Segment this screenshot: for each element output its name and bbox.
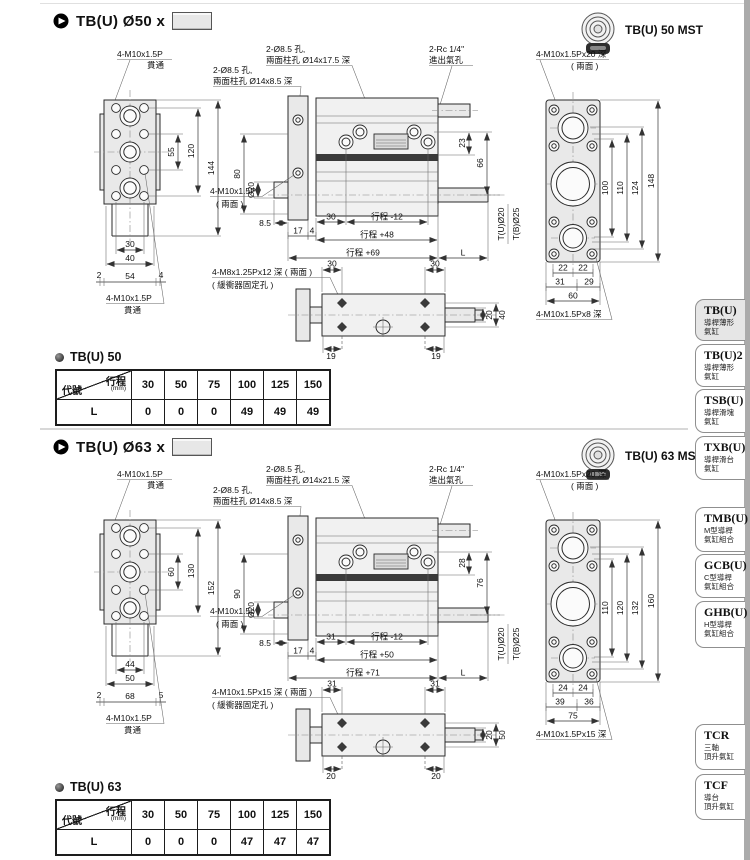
callout: 4-M8x1.25Px12 深 ( 兩面 ) (212, 267, 312, 277)
section-divider (40, 428, 688, 430)
side-section-view: 2-Ø8.5 孔, 兩面柱孔 Ø14x21.5 深 2-Rc 1/4" 進出氣孔… (210, 464, 521, 681)
sidebar-tab-tbu[interactable]: TB(U) 導桿薄形氣缸 (695, 299, 745, 341)
col-header: 150 (296, 371, 329, 399)
dim: 76 (475, 578, 485, 588)
callout: 4-M10x1.5Px15 深 (536, 729, 607, 739)
cell: 0 (164, 829, 197, 854)
callout: 4-M10x1.5P (117, 49, 163, 59)
cell: 49 (263, 399, 296, 424)
dim: 30 (327, 259, 337, 269)
cushion-bottom-view: 4-M8x1.25Px12 深 ( 兩面 ) ( 緩衝器固定孔 ) 30 30 … (212, 259, 507, 362)
callout: 貫通 (147, 480, 165, 490)
dim: 30 (125, 239, 135, 249)
dim: 120 (615, 601, 625, 615)
table-bullet-icon (55, 353, 64, 362)
dim: 20 (484, 730, 494, 740)
dim: 124 (630, 181, 640, 195)
dim: 行程 +71 (346, 668, 380, 678)
dim: 148 (646, 174, 656, 188)
dim: 100 (600, 181, 610, 195)
sidebar-tab-tcr[interactable]: TCR 三軸頂升氣缸 (695, 724, 745, 770)
dim: 80 (232, 169, 242, 179)
col-header: 100 (230, 371, 263, 399)
cell: 0 (197, 829, 230, 854)
callout: 貫通 (124, 725, 142, 735)
callout: 4-M10x1.5P (106, 293, 152, 303)
callout: 進出氣孔 (429, 475, 464, 485)
section-header-50: TB(U) Ø50 x (53, 12, 212, 30)
col-header: 75 (197, 801, 230, 829)
dim: 30 (430, 259, 440, 269)
callout: 貫通 (124, 305, 142, 315)
dim: 29 (584, 277, 594, 287)
dim: 160 (646, 594, 656, 608)
sidebar-tab-tbu2[interactable]: TB(U)2 導桿薄形氣缸 (695, 344, 745, 387)
end-view: 4-M10x1.5Px20 深 ( 兩面 ) 100 110 124 14 (536, 49, 660, 320)
stroke-value-box (172, 438, 212, 456)
stroke-table-63: TB(U) 63 行程 (mm) 代號 30 50 75 100 125 150… (55, 780, 331, 856)
dim: 行程 -12 (371, 212, 403, 222)
callout: ( 兩面 ) (571, 481, 599, 491)
front-view: 4-M10x1.5P 貫通 60 130 152 44 50 (94, 469, 221, 735)
dim: 4 (310, 646, 315, 656)
table-title: TB(U) 63 (70, 780, 121, 794)
dim: 40 (497, 310, 507, 320)
cell: 0 (131, 829, 164, 854)
cell: 47 (263, 829, 296, 854)
callout: ( 兩面 ) (216, 619, 244, 629)
sidebar-tab-ghbu[interactable]: GHB(U) H型導桿氣缸組合 (695, 601, 745, 648)
dim: 90 (232, 589, 242, 599)
section-bullet-icon (53, 439, 69, 455)
cell: 0 (131, 399, 164, 424)
dim: 行程 -12 (371, 632, 403, 642)
callout: 4-M10x1.5p (210, 606, 255, 616)
callout: 4-M10x1.5Px15 深 ( 兩面 ) (212, 687, 312, 697)
dim: 68 (125, 691, 135, 701)
callout: 兩面柱孔 Ø14x17.5 深 (266, 55, 351, 65)
callout: 2-Ø8.5 孔, (266, 44, 305, 54)
dim: 50 (125, 673, 135, 683)
side-section-view: 2-Ø8.5 孔, 兩面柱孔 Ø14x17.5 深 2-Rc 1/4" 進出氣孔… (210, 44, 521, 261)
dim: 24 (578, 683, 588, 693)
dim: 130 (186, 564, 196, 578)
dim: 152 (206, 581, 216, 595)
dim: 110 (600, 601, 610, 615)
dim: 31 (555, 277, 565, 287)
callout: ( 兩面 ) (571, 61, 599, 71)
callout: ( 緩衝器固定孔 ) (212, 700, 274, 710)
callout: 進出氣孔 (429, 55, 464, 65)
dim: 36 (584, 697, 594, 707)
col-header: 30 (131, 801, 164, 829)
dim: 39 (555, 697, 565, 707)
row-label: L (57, 399, 131, 424)
d im: 60 (568, 291, 578, 301)
dim: 44 (125, 659, 135, 669)
sidebar-tab-tcf[interactable]: TCF 導台頂升氣缸 (695, 774, 745, 820)
col-header: 125 (263, 801, 296, 829)
dim: 55 (166, 147, 176, 157)
callout: 2-Rc 1/4" (429, 464, 464, 474)
sidebar-tab-tmbu[interactable]: TMB(U) M型導桿氣缸組合 (695, 507, 745, 552)
callout: 2-Rc 1/4" (429, 44, 464, 54)
cell: 47 (296, 829, 329, 854)
cell: 0 (164, 399, 197, 424)
dim: 行程 +48 (360, 230, 394, 240)
callout: ( 兩面 ) (216, 199, 244, 209)
rod-label: T(U)Ø20 (496, 627, 506, 660)
col-header: 50 (164, 801, 197, 829)
dim: 30 (326, 212, 336, 222)
section-header-63: TB(U) Ø63 x (53, 438, 212, 456)
dim: 40 (125, 253, 135, 263)
dim: 17 (293, 226, 303, 236)
dim: 22 (558, 263, 568, 273)
col-header: 150 (296, 801, 329, 829)
dim: 132 (630, 601, 640, 615)
dim: 50 (497, 730, 507, 740)
dim: 66 (475, 158, 485, 168)
cushion-bottom-view: 4-M10x1.5Px15 深 ( 兩面 ) ( 緩衝器固定孔 ) 31 31 … (212, 679, 507, 782)
table-title: TB(U) 50 (70, 350, 121, 364)
dim: 144 (206, 161, 216, 175)
dim: 20 (484, 310, 494, 320)
col-header: 30 (131, 371, 164, 399)
callout: ( 緩衝器固定孔 ) (212, 280, 274, 290)
col-header: 50 (164, 371, 197, 399)
callout: 兩面柱孔 Ø14x8.5 深 (213, 496, 293, 506)
dim: L (461, 668, 466, 678)
dim: 17 (293, 646, 303, 656)
row-label: L (57, 829, 131, 854)
dim: 54 (125, 271, 135, 281)
dim: 22 (578, 263, 588, 273)
catalog-page: TB(U) Ø50 x TB(U) 50 MST 4-M10x1.5P 貫通 (0, 0, 750, 860)
callout: 4-M10x1.5Px20 深 (536, 49, 607, 59)
sidebar-tab-tsbu[interactable]: TSB(U) 導桿滑塊氣缸 (695, 389, 745, 433)
stroke-table-50: TB(U) 50 行程 (mm) 代號 30 50 75 100 125 150… (55, 350, 331, 426)
cell: 49 (296, 399, 329, 424)
callout: 2-Ø8.5 孔, (266, 464, 305, 474)
callout: 4-M10x1.5P (117, 469, 163, 479)
engineering-drawing-tbu50: 4-M10x1.5P 貫通 55 120 144 30 40 (0, 42, 690, 362)
mst-label: TB(U) 50 MST (625, 23, 703, 37)
callout: 2-Ø8.5 孔, (213, 485, 252, 495)
dim: 8.5 (259, 218, 271, 228)
callout: 4-M10x1.5Px20 深 (536, 469, 607, 479)
sidebar-tab-gcbu[interactable]: GCB(U) C型導桿氣缸組合 (695, 554, 745, 598)
section-title: TB(U) Ø63 x (76, 439, 165, 456)
front-view: 4-M10x1.5P 貫通 55 120 144 30 40 (94, 49, 221, 315)
col-header: 75 (197, 371, 230, 399)
dim: 75 (568, 711, 578, 721)
dim: 31 (327, 679, 337, 689)
dim: 4 (310, 226, 315, 236)
rod-label: T(B)Ø25 (511, 627, 521, 660)
col-header: 125 (263, 371, 296, 399)
callout: 4-M10x1.5P (106, 713, 152, 723)
table-corner: 行程 (mm) 代號 (57, 371, 131, 399)
dim: 31 (430, 679, 440, 689)
dim: 2 (97, 690, 102, 700)
dim: 行程 +69 (346, 248, 380, 258)
callout: 4-M10x1.5P (210, 186, 256, 196)
dim: L (461, 248, 466, 258)
table-bullet-icon (55, 783, 64, 792)
sidebar-tab-txbu[interactable]: TXB(U) 導桿滑台氣缸 (695, 436, 745, 480)
dim: 110 (615, 181, 625, 195)
rod-label: T(U)Ø20 (496, 207, 506, 240)
dim: 28 (457, 558, 467, 568)
callout: 兩面柱孔 Ø14x21.5 深 (266, 475, 351, 485)
dim: 行程 +50 (360, 650, 394, 660)
dim: 2 (97, 270, 102, 280)
section-bullet-icon (53, 13, 69, 29)
callout: 兩面柱孔 Ø14x8.5 深 (213, 76, 293, 86)
end-view: 4-M10x1.5Px20 深 ( 兩面 ) 110 120 132 16 (536, 469, 660, 740)
callout: 2-Ø8.5 孔, (213, 65, 252, 75)
callout: 4-M10x1.5Px8 深 (536, 309, 602, 319)
cell: 47 (230, 829, 263, 854)
dim: 60 (166, 567, 176, 577)
table-corner: 行程 (mm) 代號 (57, 801, 131, 829)
engineering-drawing-tbu63: 4-M10x1.5P 貫通 60 130 152 44 50 (0, 462, 690, 782)
dim: 120 (186, 144, 196, 158)
rod-label: T(B)Ø25 (511, 207, 521, 240)
stroke-value-box (172, 12, 212, 30)
mst-label: TB(U) 63 MST (625, 449, 703, 463)
dim: 23 (457, 138, 467, 148)
section-title: TB(U) Ø50 x (76, 13, 165, 30)
top-rule (40, 3, 745, 4)
dim: 31 (326, 632, 336, 642)
callout: 貫通 (147, 60, 165, 70)
col-header: 100 (230, 801, 263, 829)
cell: 0 (197, 399, 230, 424)
dim: 20 (431, 771, 441, 781)
dim: 19 (431, 351, 441, 361)
cell: 49 (230, 399, 263, 424)
dim: 24 (558, 683, 568, 693)
dim: 8.5 (259, 638, 271, 648)
